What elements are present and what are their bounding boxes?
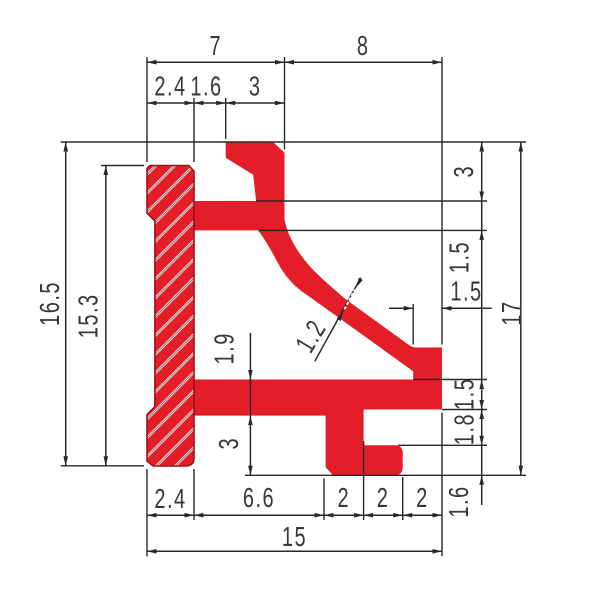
svg-text:2: 2 [416,483,429,514]
svg-text:2.4: 2.4 [154,71,186,102]
svg-text:16.5: 16.5 [35,281,66,326]
svg-text:3: 3 [249,71,262,102]
svg-text:17: 17 [497,300,528,325]
svg-text:3: 3 [214,437,245,450]
svg-text:3: 3 [449,165,480,178]
svg-text:1.6: 1.6 [444,485,475,517]
svg-text:2.4: 2.4 [154,484,186,515]
svg-text:2: 2 [337,483,350,514]
svg-text:1.9: 1.9 [209,332,240,364]
svg-text:2: 2 [377,483,390,514]
svg-text:1.5: 1.5 [449,378,480,410]
svg-text:7: 7 [209,31,222,62]
svg-text:6.6: 6.6 [243,483,275,514]
svg-text:1.8: 1.8 [449,413,480,445]
svg-text:1.5: 1.5 [450,276,482,307]
svg-text:1.5: 1.5 [444,241,475,273]
svg-text:15: 15 [282,522,307,553]
svg-text:15.3: 15.3 [73,293,104,338]
svg-text:1.6: 1.6 [190,71,222,102]
svg-text:8: 8 [357,31,370,62]
